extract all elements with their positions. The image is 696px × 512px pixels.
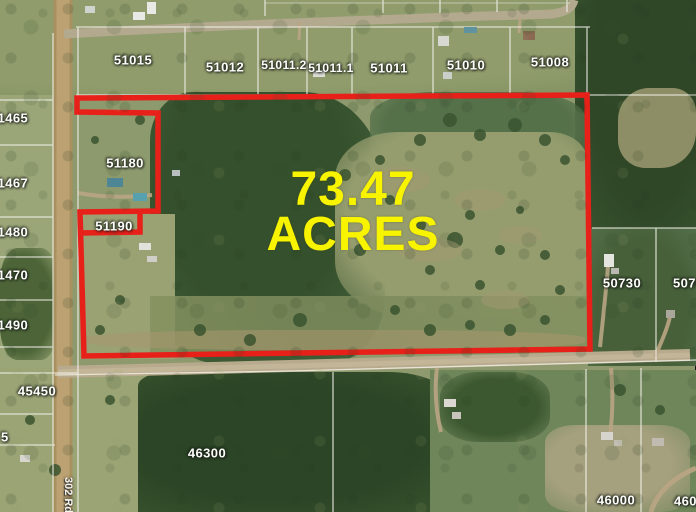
parcel-label: 51015 [114,53,152,68]
parcel-label: 46010 [674,494,696,509]
parcel-label: 46000 [597,493,635,508]
parcel-label: 50730 [603,276,641,291]
parcel-label: 50740 [673,276,696,291]
parcel-label: 51467 [0,176,28,191]
acreage-value: 73.47 [266,167,439,212]
parcel-label: 51010 [447,58,485,73]
parcel-label: 45450 [18,384,56,399]
acreage-label: 73.47 ACRES [266,167,439,257]
parcel-label: 51465 [0,111,28,126]
parcel-label: 46300 [188,446,226,461]
parcel-label: 51012 [206,60,244,75]
aerial-parcel-map: 51015 51012 51011.2 51011.1 51011 51010 … [0,0,696,512]
parcel-label: 51008 [531,55,569,70]
parcel-label: 51011.1 [308,61,354,75]
parcel-label: 51011 [370,61,407,76]
parcel-label: 5 [1,430,9,445]
parcel-label: 51011.2 [261,58,307,72]
parcel-label: 51490 [0,318,28,333]
parcel-label: 51480 [0,225,28,240]
parcel-label: 51180 [106,156,143,171]
parcel-label: 51190 [95,219,132,234]
road-name-label: 302 Rd [62,477,74,512]
parcel-label: 51470 [0,268,28,283]
acreage-unit: ACRES [266,212,439,257]
